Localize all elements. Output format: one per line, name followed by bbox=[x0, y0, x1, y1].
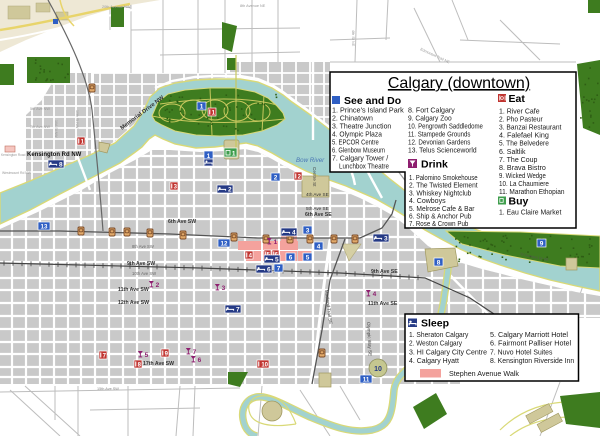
svg-text:10. Pengrowth Saddledome: 10. Pengrowth Saddledome bbox=[408, 124, 483, 131]
svg-text:4: 4 bbox=[373, 291, 377, 298]
svg-text:9: 9 bbox=[540, 240, 544, 247]
svg-text:13. Telus Scienceworld: 13. Telus Scienceworld bbox=[408, 148, 477, 155]
svg-text:6. Fairmont Palliser Hotel: 6. Fairmont Palliser Hotel bbox=[490, 341, 572, 348]
svg-text:4. Calgary Hyatt: 4. Calgary Hyatt bbox=[409, 358, 459, 365]
svg-text:10A St NW: 10A St NW bbox=[54, 120, 58, 138]
svg-text:Calgary (downtown): Calgary (downtown) bbox=[388, 75, 530, 92]
svg-text:See and Do: See and Do bbox=[344, 95, 401, 107]
svg-text:4: 4 bbox=[292, 230, 296, 237]
svg-text:1: 1 bbox=[274, 239, 278, 246]
svg-text:4: 4 bbox=[317, 243, 321, 250]
svg-text:5: 5 bbox=[145, 352, 149, 359]
svg-text:5. EPCOR Centre: 5. EPCOR Centre bbox=[332, 140, 379, 147]
svg-text:3. Theatre Junction: 3. Theatre Junction bbox=[332, 124, 391, 131]
svg-text:7. Calgary Tower /: 7. Calgary Tower / bbox=[332, 156, 388, 163]
svg-text:6. Ship & Anchor Pub: 6. Ship & Anchor Pub bbox=[409, 214, 471, 221]
svg-text:5: 5 bbox=[275, 257, 279, 264]
svg-text:2. Chinatown: 2. Chinatown bbox=[332, 116, 373, 123]
svg-text:7. Nuvo Hotel Suites: 7. Nuvo Hotel Suites bbox=[490, 349, 553, 356]
svg-text:8th Avenue NE: 8th Avenue NE bbox=[240, 4, 266, 8]
svg-text:2: 2 bbox=[228, 187, 232, 194]
svg-text:3: 3 bbox=[306, 227, 310, 234]
svg-text:13: 13 bbox=[41, 223, 48, 230]
svg-text:3: 3 bbox=[384, 236, 388, 243]
svg-text:3. HI Calgary City Centre: 3. HI Calgary City Centre bbox=[409, 349, 487, 356]
svg-text:6. Glenbow Museum: 6. Glenbow Museum bbox=[332, 148, 385, 155]
svg-text:2. The Twisted Element: 2. The Twisted Element bbox=[409, 183, 478, 190]
svg-text:Eat: Eat bbox=[509, 93, 526, 105]
svg-text:5th Ave NW: 5th Ave NW bbox=[30, 107, 50, 111]
svg-text:8: 8 bbox=[437, 259, 441, 266]
svg-text:Buy: Buy bbox=[509, 196, 529, 208]
svg-text:Westmount Rd NW: Westmount Rd NW bbox=[2, 171, 32, 175]
svg-text:11. Stampede Grounds: 11. Stampede Grounds bbox=[408, 132, 471, 139]
svg-text:8. Fort Calgary: 8. Fort Calgary bbox=[408, 108, 455, 115]
svg-text:11th Ave SE: 11th Ave SE bbox=[368, 301, 398, 307]
svg-text:1: 1 bbox=[232, 151, 236, 158]
svg-text:1: 1 bbox=[200, 103, 204, 110]
svg-text:1. Palomino Smokehouse: 1. Palomino Smokehouse bbox=[409, 175, 478, 182]
svg-text:Drink: Drink bbox=[421, 159, 448, 171]
svg-text:12. Devonian Gardens: 12. Devonian Gardens bbox=[408, 140, 471, 147]
svg-text:4th Ave SE: 4th Ave SE bbox=[306, 192, 329, 197]
svg-text:7. Rose & Crown Pub: 7. Rose & Crown Pub bbox=[409, 221, 468, 228]
svg-text:5th Ave SE: 5th Ave SE bbox=[306, 206, 329, 211]
svg-text:Stephen Avenue Walk: Stephen Avenue Walk bbox=[449, 369, 519, 378]
svg-text:6th Ave SW: 6th Ave SW bbox=[168, 219, 196, 225]
svg-text:7: 7 bbox=[277, 265, 281, 272]
svg-text:2: 2 bbox=[156, 282, 160, 289]
svg-text:12: 12 bbox=[221, 240, 228, 247]
svg-text:Centre St: Centre St bbox=[312, 167, 317, 187]
svg-text:4. Cowboys: 4. Cowboys bbox=[409, 198, 446, 205]
svg-text:7. The Coup: 7. The Coup bbox=[499, 157, 538, 164]
svg-text:10: 10 bbox=[261, 363, 268, 369]
svg-text:5. Calgary Marriott Hotel: 5. Calgary Marriott Hotel bbox=[490, 332, 568, 339]
svg-text:1: 1 bbox=[207, 153, 211, 160]
svg-text:9. Wicked Wedge: 9. Wicked Wedge bbox=[499, 173, 546, 180]
svg-text:11: 11 bbox=[363, 376, 370, 383]
svg-text:Lunchbox Theatre: Lunchbox Theatre bbox=[339, 164, 389, 171]
svg-text:5: 5 bbox=[306, 254, 310, 261]
svg-text:6: 6 bbox=[198, 357, 202, 364]
svg-text:3. Whiskey Nightclub: 3. Whiskey Nightclub bbox=[409, 190, 472, 197]
svg-text:8th Ave SW: 8th Ave SW bbox=[132, 244, 154, 249]
svg-text:5. Melrose Cafe & Bar: 5. Melrose Cafe & Bar bbox=[409, 206, 475, 213]
svg-text:7th Ave NW: 7th Ave NW bbox=[30, 125, 50, 129]
svg-text:Sleep: Sleep bbox=[421, 318, 449, 330]
svg-text:8: 8 bbox=[59, 162, 63, 169]
svg-text:4. Falefael King: 4. Falefael King bbox=[499, 133, 549, 140]
svg-text:3: 3 bbox=[222, 285, 226, 292]
svg-text:2. Pho Pasteur: 2. Pho Pasteur bbox=[499, 117, 543, 124]
svg-text:1. Prince's Island Park: 1. Prince's Island Park bbox=[332, 108, 404, 115]
svg-text:3. Banzai Restaurant: 3. Banzai Restaurant bbox=[499, 125, 561, 132]
svg-text:4. Olympic Plaza: 4. Olympic Plaza bbox=[332, 132, 382, 139]
svg-text:10: 10 bbox=[374, 366, 382, 373]
svg-text:Kensington Rd NW: Kensington Rd NW bbox=[27, 152, 82, 158]
svg-text:10th St NW: 10th St NW bbox=[75, 110, 79, 129]
svg-text:1. Sheraton Calgary: 1. Sheraton Calgary bbox=[409, 332, 469, 339]
svg-text:6th Ave SE: 6th Ave SE bbox=[305, 212, 332, 218]
svg-text:20th Avenue NW: 20th Avenue NW bbox=[102, 5, 131, 9]
svg-text:12th Ave SW: 12th Ave SW bbox=[118, 300, 149, 306]
svg-text:2. Weston Calgary: 2. Weston Calgary bbox=[409, 341, 462, 348]
svg-text:7: 7 bbox=[236, 307, 240, 314]
svg-text:6: 6 bbox=[289, 254, 293, 261]
svg-text:15th Ave SW: 15th Ave SW bbox=[97, 387, 119, 391]
svg-text:6. Saltlik: 6. Saltlik bbox=[499, 149, 526, 156]
svg-text:5. The Belvedere: 5. The Belvedere bbox=[499, 141, 549, 148]
svg-text:4th St NE: 4th St NE bbox=[351, 30, 355, 47]
svg-text:7: 7 bbox=[193, 349, 197, 356]
svg-text:Kensington Road: Kensington Road bbox=[1, 153, 26, 157]
svg-text:1. Eau Claire Market: 1. Eau Claire Market bbox=[499, 210, 561, 217]
svg-text:1. River Cafe: 1. River Cafe bbox=[499, 109, 540, 116]
svg-text:11th Ave SW: 11th Ave SW bbox=[118, 287, 149, 293]
svg-text:10. La Chaumiere: 10. La Chaumiere bbox=[499, 181, 549, 188]
svg-text:8. Kensington Riverside Inn: 8. Kensington Riverside Inn bbox=[490, 358, 574, 365]
svg-text:Bow River: Bow River bbox=[296, 157, 325, 164]
svg-text:10th Ave SW: 10th Ave SW bbox=[132, 271, 156, 276]
svg-text:9th Ave SE: 9th Ave SE bbox=[371, 269, 398, 275]
svg-text:9. Calgary Zoo: 9. Calgary Zoo bbox=[408, 116, 452, 123]
svg-text:8. Brava Bistro: 8. Brava Bistro bbox=[499, 165, 546, 172]
svg-text:9th Ave SW: 9th Ave SW bbox=[127, 261, 155, 267]
svg-text:17th Ave SW: 17th Ave SW bbox=[143, 361, 174, 367]
svg-text:6: 6 bbox=[267, 267, 271, 274]
svg-text:2: 2 bbox=[274, 174, 278, 181]
